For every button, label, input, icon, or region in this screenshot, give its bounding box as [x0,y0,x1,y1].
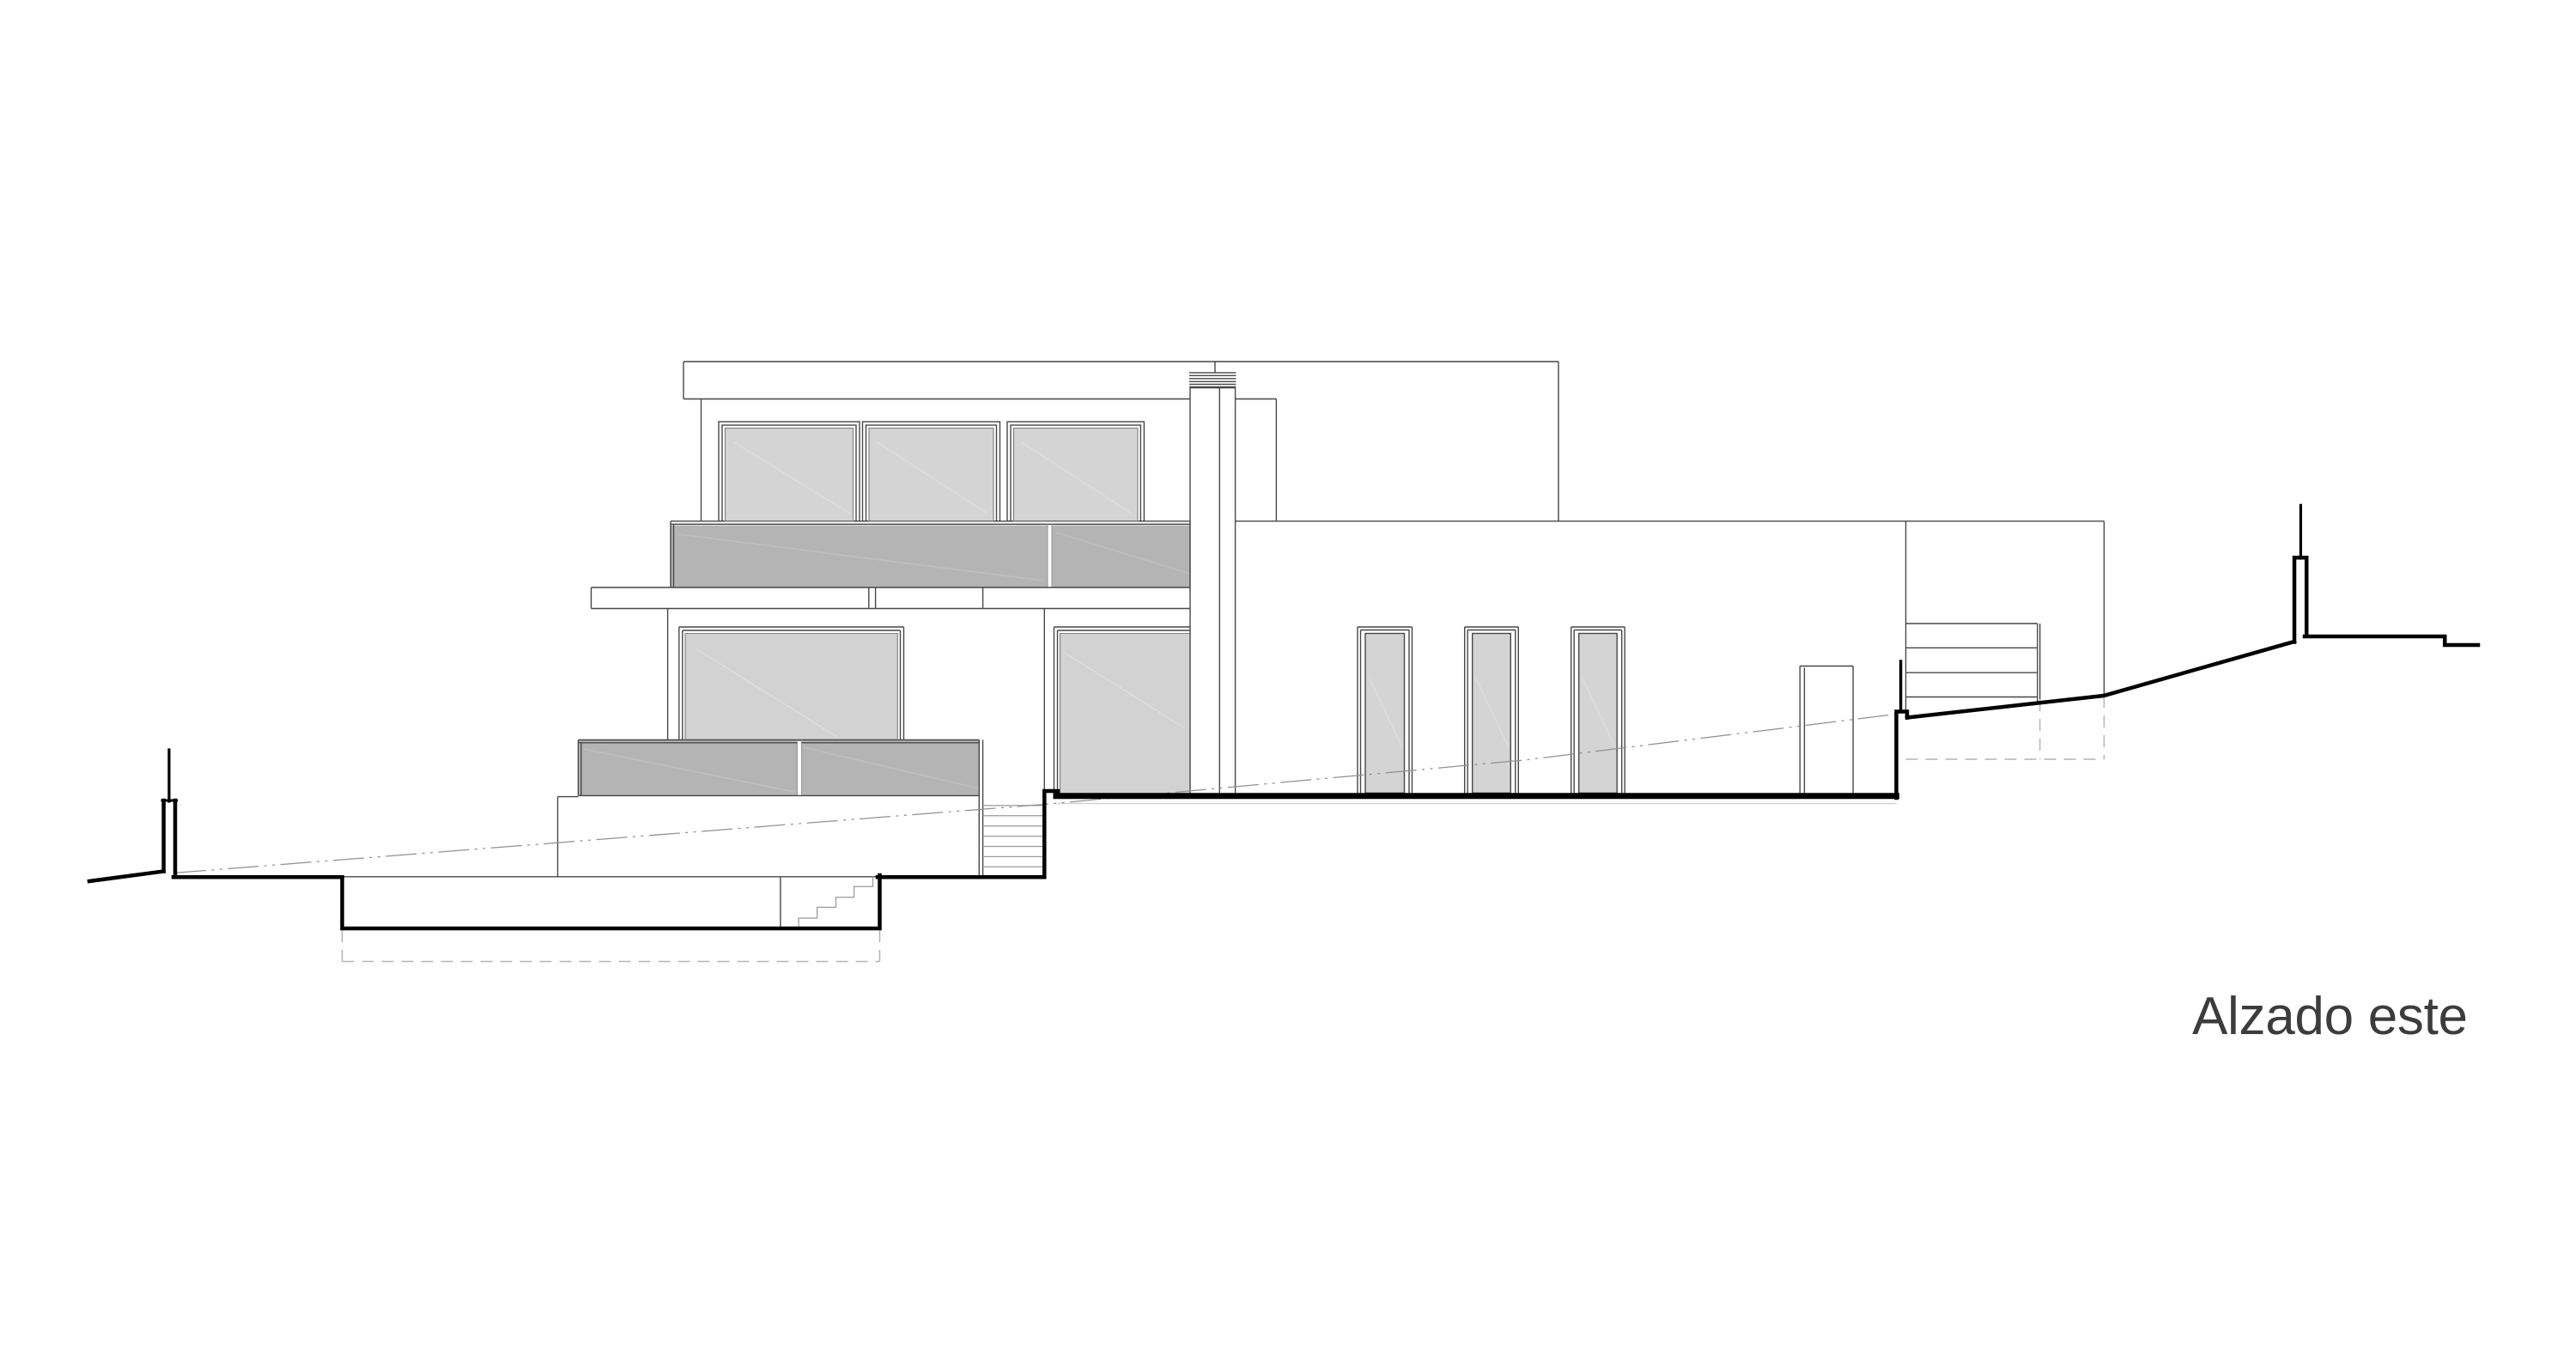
svg-text:Alzado este: Alzado este [2192,987,2468,1046]
